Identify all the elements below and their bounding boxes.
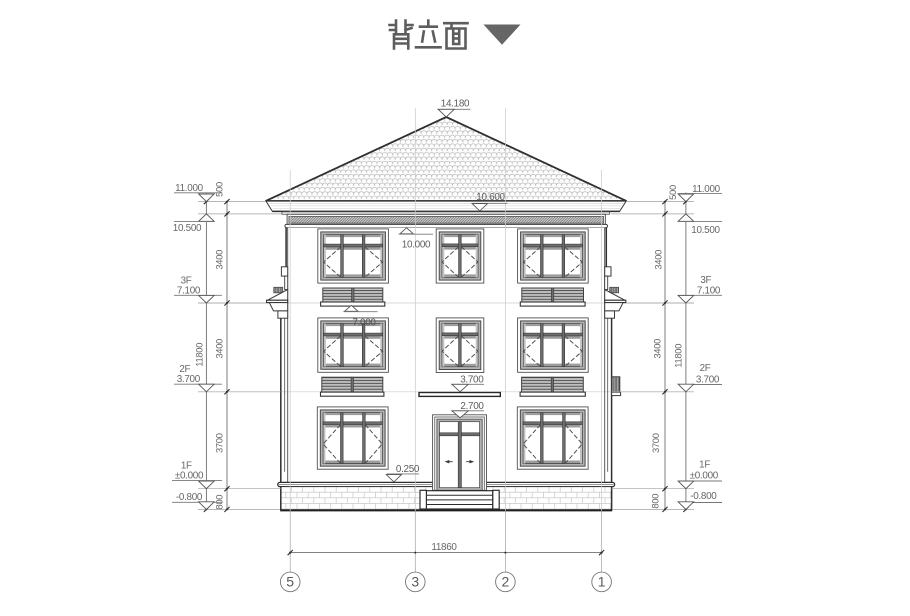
svg-text:±0.000: ±0.000 <box>175 470 204 481</box>
svg-text:3.700: 3.700 <box>696 374 720 385</box>
svg-text:-0.800: -0.800 <box>690 491 717 502</box>
svg-text:3700: 3700 <box>650 433 661 453</box>
svg-text:2F: 2F <box>700 363 711 374</box>
svg-text:±0.000: ±0.000 <box>690 471 719 482</box>
svg-text:11800: 11800 <box>194 343 205 367</box>
svg-text:3400: 3400 <box>652 339 663 359</box>
svg-text:10.500: 10.500 <box>691 225 720 236</box>
svg-text:11860: 11860 <box>431 542 457 553</box>
svg-text:14.180: 14.180 <box>441 99 470 110</box>
svg-text:800: 800 <box>649 494 660 509</box>
svg-text:-0.800: -0.800 <box>176 492 203 503</box>
svg-text:3: 3 <box>411 574 419 590</box>
svg-text:500: 500 <box>667 185 678 200</box>
svg-text:7.100: 7.100 <box>177 285 201 296</box>
svg-text:1: 1 <box>598 574 606 590</box>
svg-text:3700: 3700 <box>214 433 225 453</box>
svg-text:3400: 3400 <box>214 250 225 270</box>
svg-text:10.600: 10.600 <box>476 192 505 203</box>
svg-text:2: 2 <box>502 574 510 590</box>
svg-text:10.000: 10.000 <box>402 239 431 250</box>
svg-text:3400: 3400 <box>653 250 664 270</box>
svg-text:10.500: 10.500 <box>173 223 202 234</box>
svg-text:11800: 11800 <box>673 344 684 368</box>
svg-text:7.100: 7.100 <box>697 285 721 296</box>
svg-text:5: 5 <box>286 574 294 590</box>
svg-text:3.700: 3.700 <box>177 374 201 385</box>
svg-text:1F: 1F <box>699 459 710 470</box>
svg-text:500: 500 <box>214 182 225 197</box>
svg-text:0.250: 0.250 <box>396 464 420 475</box>
svg-text:3.700: 3.700 <box>460 374 484 385</box>
svg-text:7.000: 7.000 <box>352 318 376 329</box>
svg-text:3400: 3400 <box>214 339 225 359</box>
